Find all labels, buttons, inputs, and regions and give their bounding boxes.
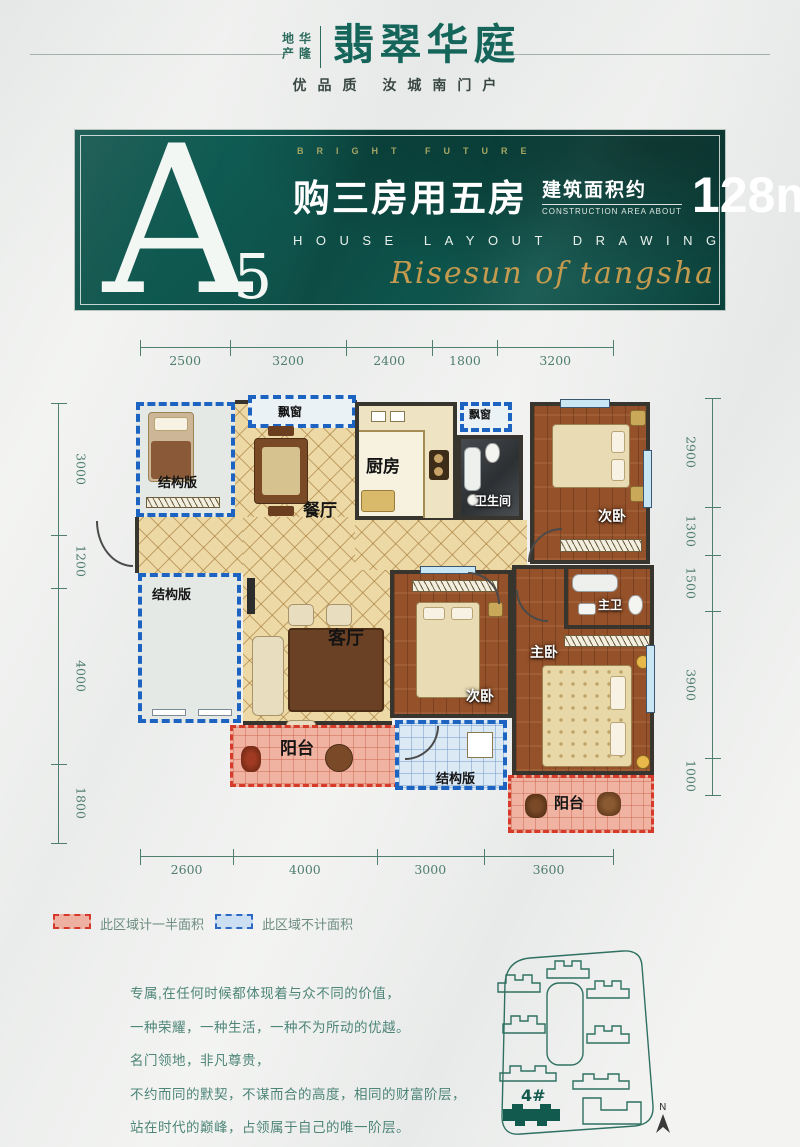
legend-no-area-label: 此区域不计面积 [262, 914, 353, 933]
room-label-balcony2: 阳台 [554, 792, 584, 813]
dim-value: 2600 [171, 862, 203, 877]
logo-tagline: 优品质 汝城南门户 [0, 75, 800, 95]
room-label-bedroom2: 次卧 [466, 686, 494, 706]
wall-segment-2 [564, 625, 652, 629]
toilet-graphic [628, 595, 643, 615]
burner-graphic-2 [434, 467, 443, 476]
dim-value: 2400 [373, 353, 405, 368]
pillow-graphic-2 [610, 722, 626, 756]
dim-tick [705, 398, 721, 399]
site-building [587, 1026, 629, 1043]
north-arrow-icon [656, 1114, 670, 1133]
dim-value: 3000 [414, 862, 446, 877]
room-label-dining: 餐厅 [303, 496, 337, 521]
dining-table-graphic [254, 438, 308, 504]
poster-page: 华隆地产 翡翠华庭 优品质 汝城南门户 A 5 BRIGHT FUTURE 购三… [0, 0, 800, 1147]
pillow-graphic [423, 607, 445, 620]
site-plan: 4# N [475, 938, 710, 1145]
window-sill-graphic-2 [198, 709, 232, 716]
balcony-1 [230, 725, 400, 787]
legend-half-area-swatch [53, 914, 91, 929]
table-top-graphic [262, 447, 300, 495]
dim-tick [497, 340, 498, 356]
site-building-4-filled [503, 1104, 560, 1126]
door-arc [405, 726, 439, 760]
banner-script-text: Risesun of tangsha [293, 256, 715, 291]
room-label-bath: 卫生间 [475, 492, 511, 509]
burner-graphic [434, 454, 443, 463]
dim-tick [705, 795, 721, 796]
wardrobe-graphic [564, 635, 650, 647]
legend-half-area-label: 此区域计一半面积 [100, 914, 204, 933]
site-building-bottom-right [583, 1098, 641, 1124]
area-label-cn: 建筑面积约 [542, 175, 682, 205]
dim-value: 1000 [684, 760, 699, 792]
site-building-4-label: 4# [521, 1086, 546, 1105]
banner-headline: 购三房用五房 [293, 168, 527, 222]
wardrobe-graphic [560, 539, 642, 552]
dim-value: 3000 [74, 453, 89, 485]
sink-graphic-2 [390, 411, 405, 422]
bed-graphic [416, 602, 480, 698]
copy-line: 站在时代的巅峰，占领属于自己的唯一阶层。 [130, 1116, 510, 1136]
entry-door-arc [96, 521, 133, 567]
site-building [547, 961, 589, 978]
sink-graphic [371, 411, 386, 422]
dim-value: 1500 [684, 567, 699, 599]
dim-tick [613, 849, 614, 865]
unit-number: 5 [233, 240, 272, 313]
dim-value: 4000 [74, 660, 89, 692]
site-building [587, 981, 629, 998]
dim-tick [230, 340, 231, 356]
lamp-graphic-2 [636, 755, 650, 769]
dim-value: 4000 [289, 862, 321, 877]
dim-value: 3900 [684, 669, 699, 701]
dim-tick [51, 403, 67, 404]
dim-value: 3600 [533, 862, 565, 877]
pillow-graphic [610, 676, 626, 710]
nightstand-graphic [630, 410, 646, 426]
bathtub-graphic [572, 574, 618, 592]
room-label-structure-b: 结构版 [436, 768, 475, 787]
copy-line: 一种荣耀，一种生活，一种不为所动的优越。 [130, 1016, 510, 1036]
dim-tick [705, 611, 721, 612]
dim-value: 1200 [74, 545, 89, 577]
dim-tick [377, 849, 378, 865]
room-label-living: 客厅 [328, 624, 364, 650]
dim-value: 1300 [684, 515, 699, 547]
dim-tick [51, 764, 67, 765]
dim-tick [346, 340, 347, 356]
dim-value: 3200 [272, 353, 304, 368]
dim-tick [484, 849, 485, 865]
unit-letter: A [103, 120, 251, 325]
sofa-graphic [252, 636, 284, 716]
room-label-kitchen: 厨房 [366, 452, 400, 477]
site-building [500, 1066, 556, 1081]
banner-subtitle: HOUSE LAYOUT DRAWING [293, 233, 715, 248]
banner-text-block: BRIGHT FUTURE 购三房用五房 建筑面积约 CONSTRUCTION … [293, 146, 715, 291]
window-strip [560, 399, 610, 408]
shower-graphic [467, 732, 493, 758]
dim-tick [613, 340, 614, 356]
dimension-line-top: 25003200240018003200 [140, 347, 613, 348]
dimension-line-left: 3000120040001800 [58, 403, 59, 843]
plant-graphic [525, 794, 547, 818]
washbasin-graphic [578, 603, 596, 615]
marketing-copy: 专属,在任何时候都体现着与众不同的价值， 一种荣耀，一种生活，一种不为所动的优越… [130, 982, 510, 1147]
structure-room-top-left [136, 402, 235, 517]
copy-line: 不约而同的默契，不谋而合的高度，相同的财富阶层， [130, 1083, 510, 1103]
cabinet-graphic [361, 490, 395, 512]
plant-graphic-2 [597, 792, 621, 816]
north-label: N [659, 1102, 666, 1113]
window-sill-graphic [152, 709, 186, 716]
dimension-line-right: 29001300150039001000 [712, 398, 713, 795]
bathtub-graphic [464, 447, 481, 491]
chair-graphic [268, 426, 294, 436]
dim-tick [140, 849, 141, 865]
dim-tick [51, 843, 67, 844]
toilet-graphic [485, 443, 500, 463]
dim-value: 1800 [74, 787, 89, 819]
dim-tick [705, 507, 721, 508]
area-label-en: CONSTRUCTION AREA ABOUT [542, 207, 682, 216]
dim-tick [51, 535, 67, 536]
area-value-number: 128m [692, 167, 800, 223]
pillow-graphic [611, 431, 625, 453]
legend-no-area-swatch [215, 914, 253, 929]
floor-plan: 结构版 飘窗 厨房 飘窗 卫生间 餐厅 次卧 客厅 结构版 次卧 主卧 主卫 阳… [130, 390, 660, 850]
room-label-structure-bl: 结构版 [152, 584, 191, 603]
dim-value: 2900 [684, 436, 699, 468]
dim-value: 2500 [169, 353, 201, 368]
dim-tick [51, 588, 67, 589]
room-label-bay1: 飘窗 [278, 403, 302, 420]
room-label-bedroom1: 次卧 [598, 506, 626, 526]
dim-value: 1800 [449, 353, 481, 368]
room-label-master: 主卧 [530, 642, 558, 662]
chair-graphic-2 [268, 506, 294, 516]
entry-hall-floor [135, 517, 245, 573]
window-strip-2 [643, 450, 652, 508]
room-label-balcony1: 阳台 [280, 734, 314, 759]
tv-graphic [247, 578, 255, 614]
site-building [573, 1074, 629, 1089]
dim-tick [705, 555, 721, 556]
room-label-master-bath: 主卫 [598, 596, 622, 613]
window-strip-3 [646, 645, 655, 713]
pillow-graphic-2 [611, 459, 625, 481]
plant-graphic [241, 746, 261, 772]
pillow-graphic [154, 417, 188, 431]
stove-graphic [429, 450, 449, 480]
area-value: 128m2 [692, 166, 800, 224]
dim-tick [705, 758, 721, 759]
copy-line: 专属,在任何时候都体现着与众不同的价值， [130, 982, 510, 1002]
dim-tick [140, 340, 141, 356]
site-courtyard [547, 983, 583, 1065]
dim-value: 3200 [539, 353, 571, 368]
dim-tick [432, 340, 433, 356]
area-label-block: 建筑面积约 CONSTRUCTION AREA ABOUT [540, 175, 682, 216]
corridor-floor [355, 520, 527, 570]
banner-eyebrow: BRIGHT FUTURE [297, 146, 715, 156]
copy-line: 名门领地，非凡尊贵， [130, 1049, 510, 1069]
pillow-graphic-2 [451, 607, 473, 620]
table-graphic [325, 744, 353, 772]
armchair-graphic [288, 604, 314, 626]
logo-block: 华隆地产 翡翠华庭 优品质 汝城南门户 [0, 18, 800, 95]
brand-vertical-text: 华隆地产 [279, 26, 321, 68]
nightstand-graphic [488, 602, 503, 617]
wardrobe-graphic [146, 497, 220, 508]
unit-banner: A 5 BRIGHT FUTURE 购三房用五房 建筑面积约 CONSTRUCT… [75, 130, 725, 310]
site-building [503, 1016, 545, 1033]
wall-segment [564, 569, 568, 627]
dim-tick [233, 849, 234, 865]
room-label-bay2: 飘窗 [469, 406, 491, 422]
armchair-graphic-2 [326, 604, 352, 626]
room-label-structure-tl: 结构版 [158, 472, 197, 491]
dimension-line-bottom: 2600400030003600 [140, 856, 613, 857]
master-bed-graphic [542, 665, 632, 767]
bed-graphic [552, 424, 630, 488]
logo-title: 翡翠华庭 [332, 18, 520, 73]
